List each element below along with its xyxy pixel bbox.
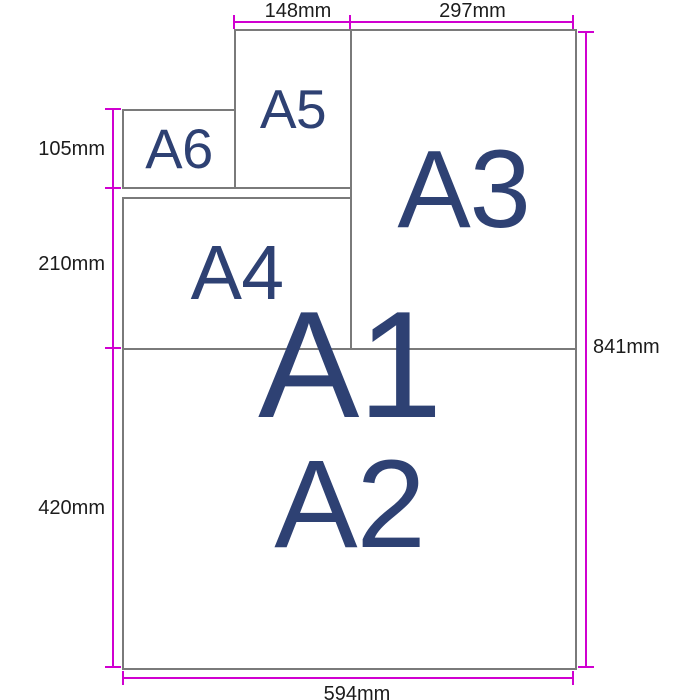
dimension-label-a2-height: 420mm xyxy=(29,498,105,518)
paper-size-diagram: A6 A5 A3 A4 A2 A1 148mm 297mm 105mm 210m… xyxy=(0,0,700,700)
dimension-line-right xyxy=(585,31,587,668)
dimension-label-a4-height: 210mm xyxy=(29,254,105,274)
dimension-label-a5-width: 148mm xyxy=(240,1,356,21)
paper-a5 xyxy=(234,29,352,189)
dimension-tick xyxy=(105,187,121,189)
dimension-label-a6-height: 105mm xyxy=(29,139,105,159)
dimension-tick xyxy=(578,666,594,668)
dimension-label-a3-width: 297mm xyxy=(360,1,585,21)
dimension-label-a1-height: 841mm xyxy=(593,337,683,357)
paper-a6 xyxy=(122,109,236,189)
dimension-tick xyxy=(122,671,124,685)
dimension-tick xyxy=(572,671,574,685)
dimension-tick xyxy=(233,15,235,29)
paper-a2 xyxy=(122,348,577,670)
dimension-label-a1-width: 594mm xyxy=(287,684,427,700)
dimension-tick xyxy=(105,108,121,110)
dimension-line-bottom xyxy=(122,677,574,679)
dimension-tick xyxy=(578,31,594,33)
paper-a3 xyxy=(350,29,577,350)
dimension-tick xyxy=(105,666,121,668)
paper-a4 xyxy=(122,197,352,350)
dimension-line-left xyxy=(112,109,114,668)
dimension-tick xyxy=(105,347,121,349)
